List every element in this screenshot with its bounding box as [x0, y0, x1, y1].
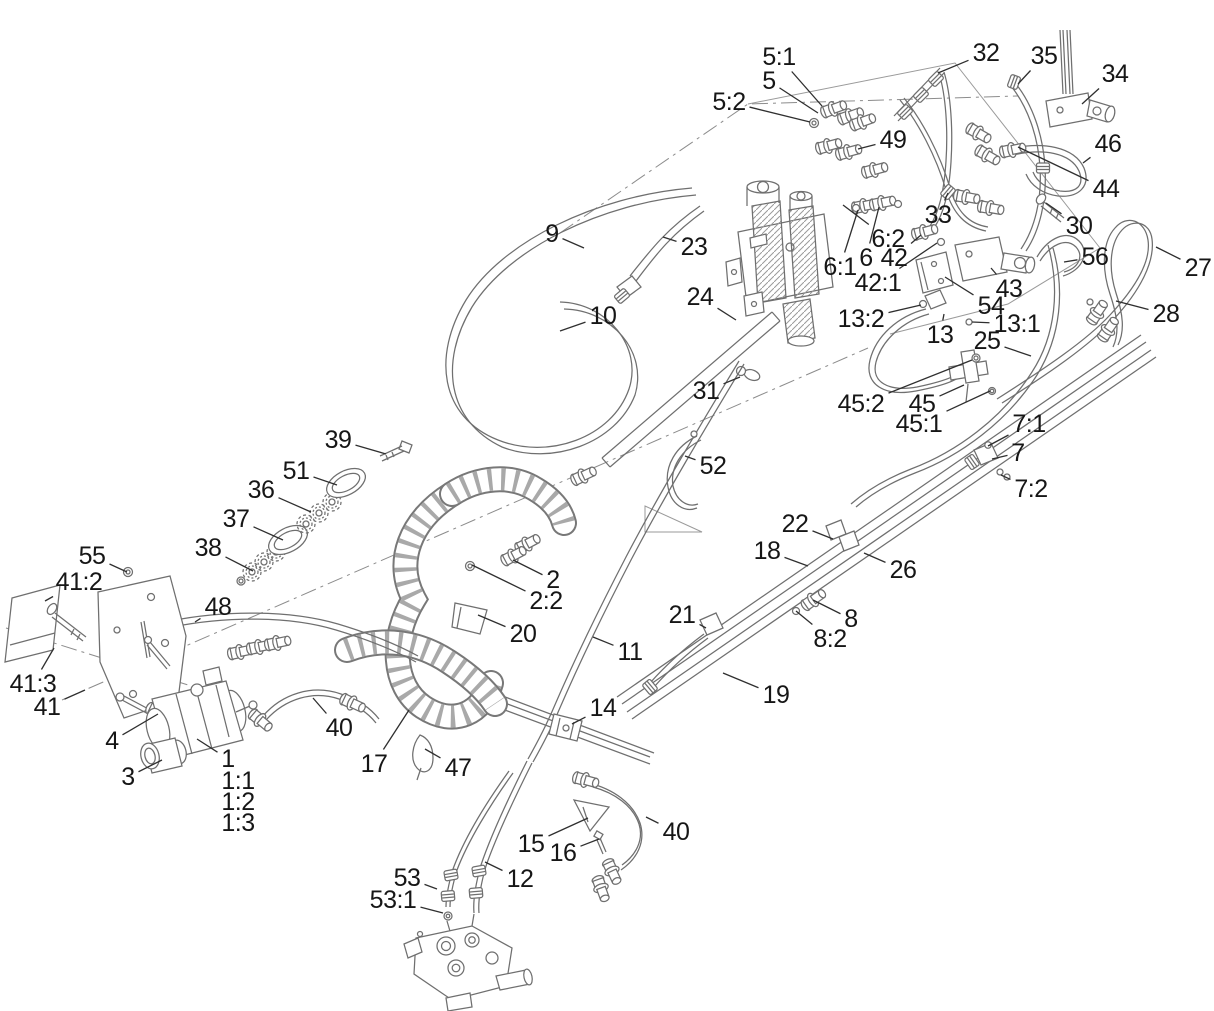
hose-23 — [614, 206, 704, 304]
fitting-42 — [910, 221, 945, 245]
leader-line-40 — [313, 698, 326, 714]
leader-line-6-1 — [845, 210, 858, 253]
hose-11 — [528, 361, 744, 762]
tube-32 — [894, 68, 952, 228]
clip-20 — [452, 603, 487, 634]
bolt-16 — [594, 831, 606, 854]
clamp-14 — [549, 714, 582, 741]
hook-bracket-52 — [667, 431, 701, 509]
leader-line-45 — [940, 385, 965, 396]
leader-line-32 — [938, 60, 969, 73]
leader-line-55 — [110, 564, 128, 572]
leader-line-6 — [870, 207, 879, 244]
fitting-cluster-6 — [850, 193, 901, 216]
leader-line-19 — [723, 673, 759, 688]
fitting-2 — [466, 531, 543, 571]
clamp-15 — [574, 800, 609, 831]
leader-line-5-1 — [792, 72, 822, 107]
leader-line-41 — [65, 690, 86, 699]
leader-line-26 — [864, 553, 886, 562]
parts-diagram-stage: 5:155:2323534494644333056279236:166:2424… — [0, 0, 1214, 1011]
leader-line-31 — [724, 377, 741, 384]
leader-line-13-1 — [972, 322, 990, 323]
leader-line-52 — [685, 456, 696, 460]
leader-line-2 — [513, 560, 543, 575]
leader-line-17 — [383, 710, 409, 750]
hose-40-lower — [571, 770, 642, 904]
leader-line-25 — [1005, 347, 1032, 356]
leader-line-53-1 — [421, 907, 444, 913]
leader-line-24 — [718, 308, 737, 320]
leader-line-44 — [1018, 147, 1089, 181]
clamp-22 — [826, 520, 859, 551]
leader-line-46 — [1083, 157, 1091, 163]
fitting-cluster-49 — [814, 135, 889, 180]
bolt-55 — [124, 568, 133, 577]
cable-tie-47 — [413, 735, 433, 780]
solenoid-34 — [1046, 30, 1116, 127]
leader-line-27 — [1156, 247, 1181, 259]
diagram-artwork — [0, 0, 1214, 1011]
leader-line-12 — [485, 862, 503, 871]
hose-56 — [1037, 236, 1084, 276]
leader-line-13 — [943, 314, 944, 321]
leader-line-36 — [279, 498, 312, 512]
leader-line-39 — [356, 445, 387, 454]
hose-53 — [441, 771, 513, 938]
hose-12 — [469, 761, 532, 938]
tee-45 — [949, 350, 996, 402]
leader-line-2-2 — [472, 565, 526, 591]
leader-line-18 — [785, 557, 809, 566]
leader-line-53 — [425, 884, 438, 889]
leader-line-8-2 — [796, 611, 812, 625]
leader-line-11 — [593, 637, 614, 645]
leader-line-45-1 — [947, 391, 991, 411]
hose-33 — [900, 98, 988, 231]
bottom-control-valve — [404, 926, 534, 1011]
clamp-stack — [237, 441, 412, 585]
hose-9-10 — [446, 188, 696, 488]
leader-line-15 — [549, 818, 589, 836]
leader-line-56 — [1064, 260, 1078, 262]
leader-line-16 — [581, 839, 600, 846]
leader-line-28 — [1116, 301, 1149, 309]
leader-line-48 — [195, 618, 201, 622]
hose-40-upper — [246, 690, 379, 735]
fitting-8 — [793, 586, 829, 615]
leader-line-9 — [563, 239, 585, 248]
bracket-54 — [916, 252, 953, 293]
spiral-hose-bundle-17 — [347, 479, 564, 716]
leader-line-40-2 — [646, 817, 659, 823]
fitting-cluster-right — [940, 120, 1005, 218]
leader-line-5-2 — [750, 107, 811, 122]
leader-lines — [41, 60, 1180, 913]
leader-line-38 — [226, 557, 254, 571]
tube-35 — [1007, 74, 1049, 251]
leader-line-10 — [560, 322, 586, 331]
hose-band-right — [617, 335, 1156, 719]
